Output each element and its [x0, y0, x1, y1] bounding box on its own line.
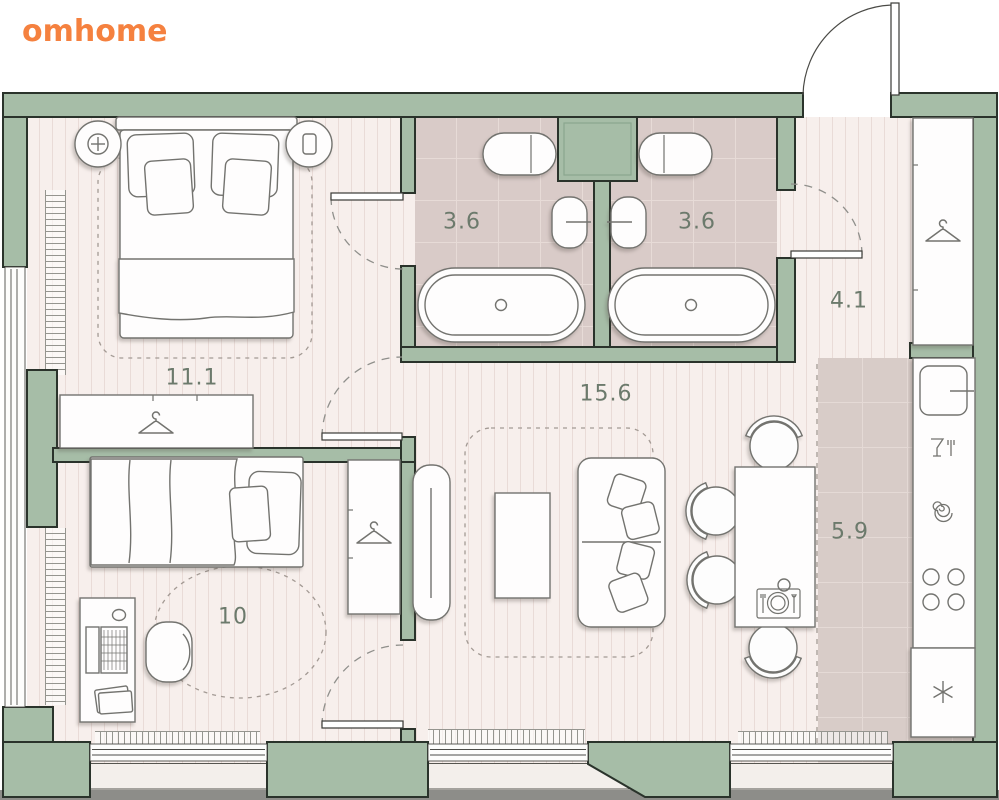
wall — [267, 742, 428, 797]
wall — [973, 117, 997, 763]
door-swing-arc — [791, 184, 862, 255]
bed-headboard — [116, 117, 297, 130]
notebook — [98, 691, 132, 714]
nightstand-left — [75, 121, 121, 167]
door-swing-arc — [322, 357, 402, 437]
bedroom-wardrobe — [60, 395, 253, 448]
kids-wardrobe — [348, 460, 400, 614]
fridge — [911, 648, 975, 737]
dining-chair — [687, 552, 741, 608]
dining-table — [735, 467, 815, 627]
wall — [893, 742, 997, 797]
coffee-table — [495, 493, 550, 598]
floorplan-svg — [0, 0, 999, 800]
pillow — [620, 501, 660, 541]
tv-console — [413, 465, 450, 620]
facade-band — [0, 763, 999, 800]
wall — [891, 93, 997, 117]
door-swing-arc — [331, 197, 403, 269]
entry-door-swing-arc — [803, 5, 895, 95]
desk — [80, 598, 135, 722]
wall — [401, 729, 415, 743]
toilet — [552, 197, 591, 248]
bathroom-2-vanity — [639, 133, 712, 175]
wall — [777, 258, 795, 362]
wall — [401, 266, 415, 357]
entry-door-leaf — [891, 3, 899, 95]
double-bed — [116, 117, 297, 338]
pillow — [229, 486, 271, 543]
sofa — [578, 458, 665, 627]
bathroom-1-door-leaf — [331, 193, 403, 200]
laptop-keyboard — [101, 627, 127, 673]
bathtub — [608, 268, 775, 342]
single-bed — [90, 457, 303, 567]
mouse-icon — [113, 610, 126, 621]
desk-chair — [146, 622, 192, 682]
dining-chair — [746, 416, 802, 470]
window — [730, 744, 893, 761]
floor-plan-page: omhome — [0, 0, 999, 800]
dining-chair — [745, 624, 801, 678]
window — [5, 267, 25, 707]
lamp-icon — [88, 134, 108, 154]
area-label-hallway: 4.1 — [830, 289, 868, 314]
wall — [3, 93, 803, 117]
wall — [401, 437, 415, 462]
bathroom-1-vanity — [483, 133, 556, 175]
wall — [401, 117, 415, 193]
area-label-bathroom-2: 3.6 — [678, 210, 716, 235]
pillow — [144, 158, 194, 215]
duct-shaft — [558, 117, 637, 181]
wall — [401, 347, 795, 362]
window — [90, 744, 267, 761]
area-label-living: 15.6 — [580, 382, 633, 407]
area-label-kids-room: 10 — [218, 605, 248, 630]
area-label-bedroom: 11.1 — [166, 366, 219, 391]
kitchen-counter — [913, 358, 975, 648]
hall-wardrobe — [913, 118, 973, 345]
bathroom-2-door-leaf — [791, 251, 862, 258]
dining-set — [686, 416, 815, 678]
nightstand-right — [286, 121, 332, 167]
toilet — [607, 197, 646, 248]
door-swing-arc — [322, 645, 403, 726]
window — [428, 744, 588, 761]
wall — [3, 742, 90, 797]
pillow — [222, 158, 272, 215]
dining-chair — [686, 483, 740, 539]
area-label-bathroom-1: 3.6 — [443, 210, 481, 235]
bathtub — [418, 268, 585, 342]
bed-blanket — [91, 459, 237, 565]
wall — [3, 117, 27, 267]
kids-room-door-leaf — [322, 721, 403, 728]
bed-blanket — [119, 259, 294, 320]
area-label-kitchen: 5.9 — [831, 520, 869, 545]
wall — [777, 117, 795, 190]
laptop-screen — [86, 627, 99, 673]
bedroom-door-leaf — [322, 433, 402, 440]
